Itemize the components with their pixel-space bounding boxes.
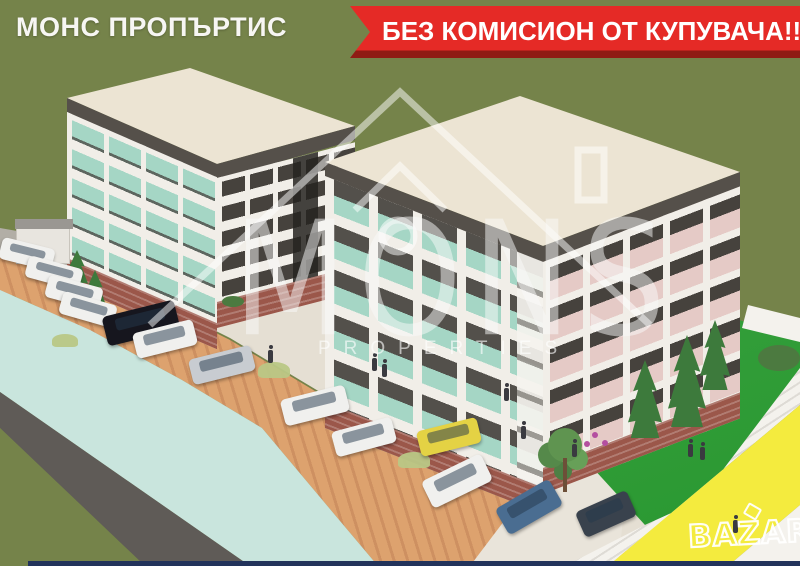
person <box>700 447 705 460</box>
flower <box>602 440 608 446</box>
bazar-watermark: BAZAR <box>687 513 800 555</box>
no-commission-banner: БЕЗ КОМИСИОН ОТ КУПУВАЧА!!! <box>350 6 800 58</box>
garage-roof <box>15 219 73 229</box>
person <box>572 444 577 457</box>
banner-text: БЕЗ КОМИСИОН ОТ КУПУВАЧА!!! <box>350 6 800 56</box>
person <box>504 388 509 401</box>
person <box>688 444 693 457</box>
listing-photo: MONS PROPERTIES BAZAR МОНС ПРОПЪРТИС БЕЗ… <box>0 0 800 566</box>
bush <box>758 345 800 371</box>
properties-watermark: PROPERTIES <box>318 338 570 360</box>
tree-trunk <box>563 458 567 492</box>
flower <box>592 432 598 438</box>
flower <box>584 441 590 447</box>
person <box>521 426 526 439</box>
agency-name: МОНС ПРОПЪРТИС <box>16 12 287 43</box>
mons-watermark: MONS <box>233 200 676 359</box>
bottom-border-line <box>28 561 800 566</box>
grass-tuft <box>52 334 78 347</box>
